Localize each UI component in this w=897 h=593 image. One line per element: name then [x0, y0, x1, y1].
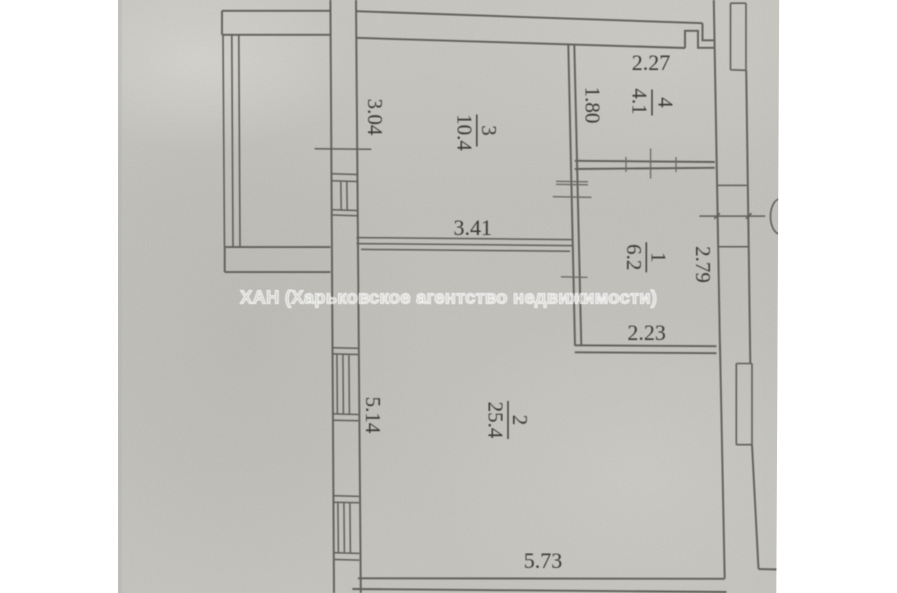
svg-text:6.2: 6.2 — [622, 244, 646, 270]
svg-text:3.04: 3.04 — [363, 99, 387, 136]
svg-text:4: 4 — [654, 97, 678, 108]
svg-text:2: 2 — [508, 415, 532, 426]
svg-text:2.23: 2.23 — [627, 320, 666, 345]
svg-text:2.27: 2.27 — [632, 50, 671, 75]
svg-text:1.80: 1.80 — [581, 87, 605, 124]
svg-text:2.79: 2.79 — [691, 246, 715, 283]
svg-text:3: 3 — [477, 125, 501, 136]
svg-text:10.4: 10.4 — [452, 114, 476, 151]
svg-text:1: 1 — [646, 252, 670, 263]
svg-text:ХАН (Харьковское агентство нед: ХАН (Харьковское агентство недвижимости) — [240, 287, 657, 308]
svg-text:5.73: 5.73 — [524, 548, 563, 573]
svg-text:25.4: 25.4 — [484, 402, 508, 439]
svg-text:4.1: 4.1 — [628, 88, 652, 114]
svg-text:3.41: 3.41 — [453, 215, 492, 240]
svg-text:5.14: 5.14 — [361, 397, 385, 434]
